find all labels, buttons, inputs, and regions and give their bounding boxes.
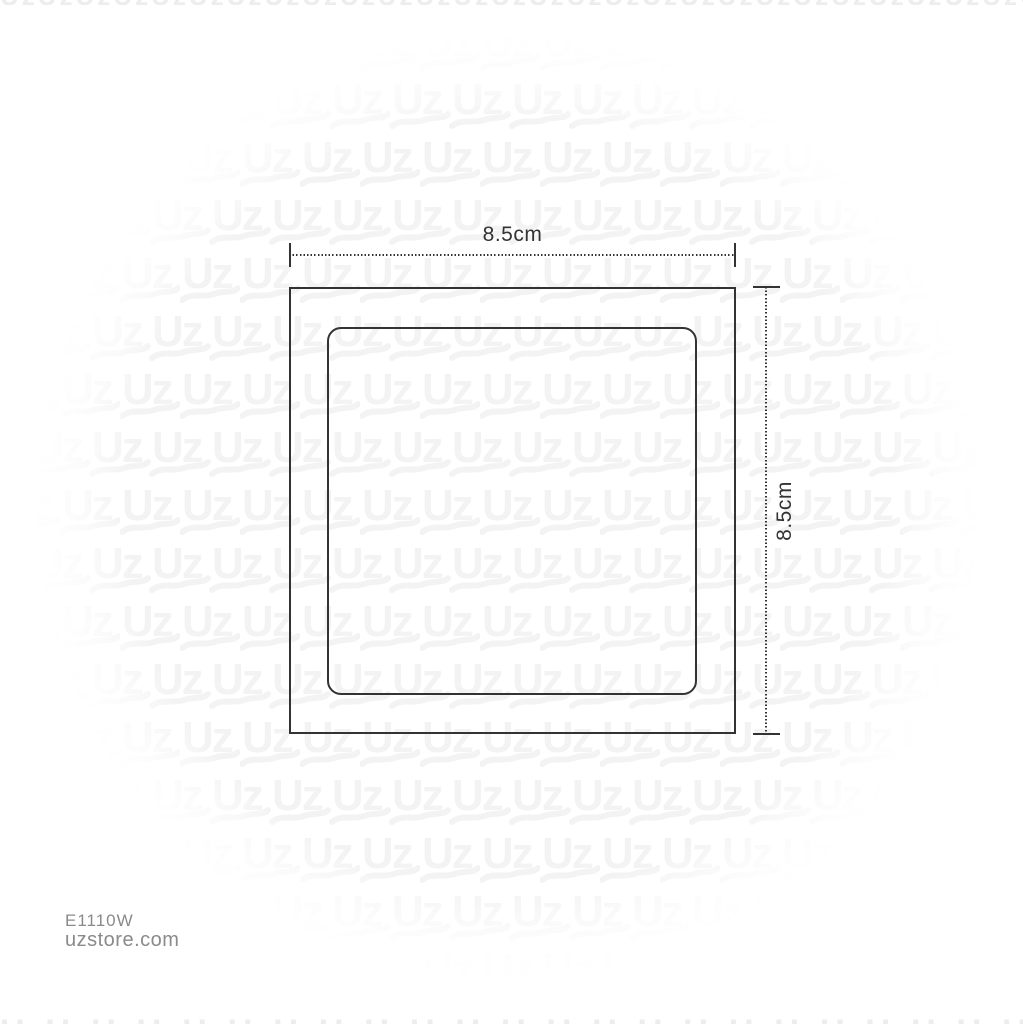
width-dimension-line — [289, 254, 736, 256]
height-dimension-label: 8.5cm — [773, 481, 793, 541]
bottom-edge-glyphs: UzUzUzUzUzUzUzUzUzUzUzUzUzUzUzUzUzUzUzUz… — [0, 1018, 1023, 1024]
height-dimension-tick-bottom — [753, 733, 780, 735]
bottom-edge-glyph-row: UzUzUzUzUzUzUzUzUzUzUzUzUzUzUzUzUzUzUzUz… — [0, 1018, 1023, 1024]
height-dimension-tick-top — [753, 286, 780, 288]
width-dimension-tick-right — [734, 243, 736, 267]
height-dimension: 8.5cm — [753, 287, 781, 734]
store-name: uzstore.com — [65, 930, 179, 951]
product-dimension-image: Uz Uz Uz UzUzUzUzUzUzUzUzUzUzUzUzUzUzUzU… — [0, 0, 1023, 1024]
width-dimension-tick-left — [289, 243, 291, 267]
height-dimension-line — [765, 287, 767, 734]
panel-inner-outline — [327, 327, 697, 695]
footer: E1110W uzstore.com — [65, 911, 179, 951]
top-edge-glyph-row: UzUzUzUzUzUzUzUzUzUzUzUzUzUzUzUzUzUzUzUz… — [0, 0, 1023, 5]
width-dimension: 8.5cm — [289, 243, 736, 267]
product-code: E1110W — [65, 911, 179, 930]
top-edge-glyphs: UzUzUzUzUzUzUzUzUzUzUzUzUzUzUzUzUzUzUzUz… — [0, 0, 1023, 5]
width-dimension-label: 8.5cm — [289, 223, 736, 247]
